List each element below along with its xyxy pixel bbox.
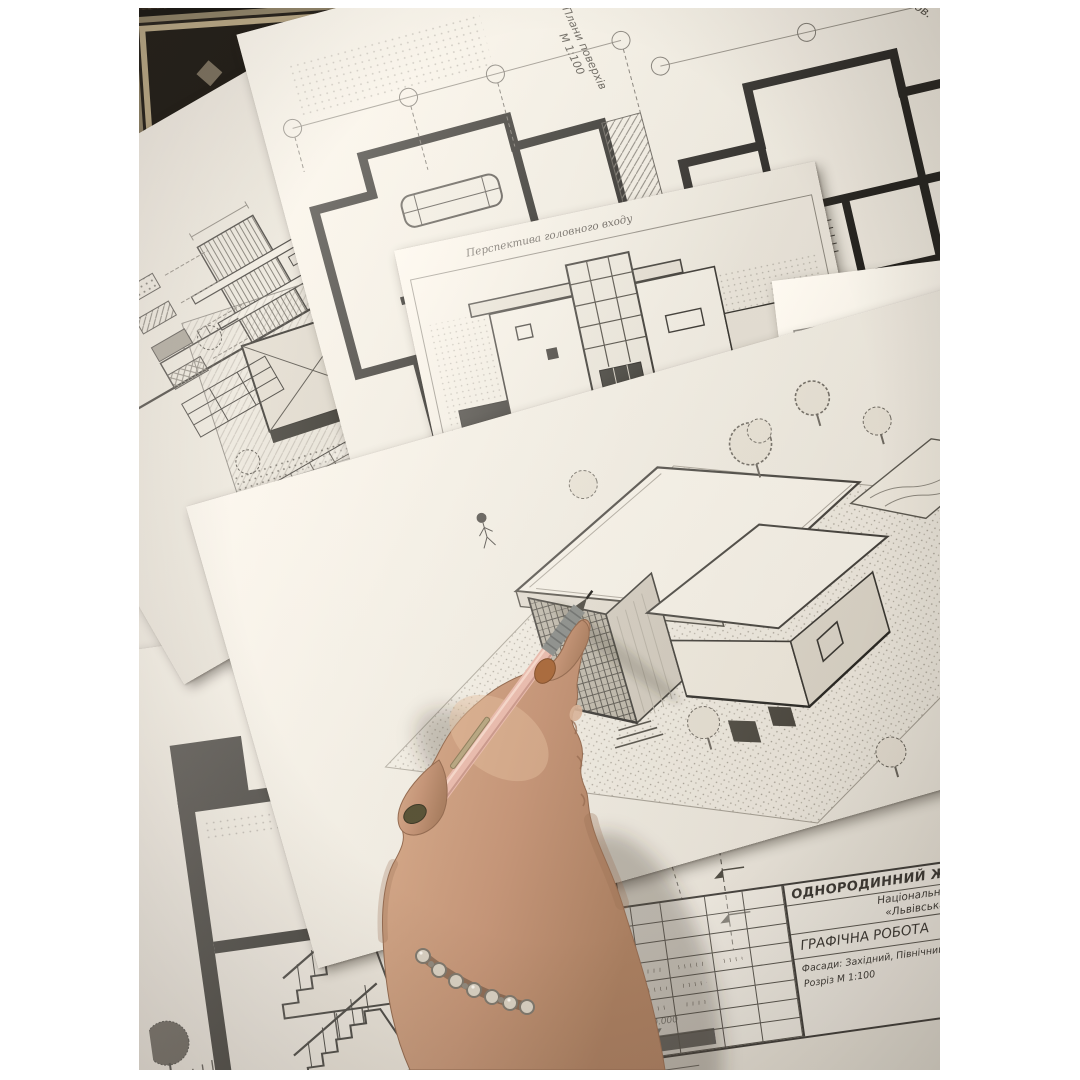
photograph-drafting-table: А: [139, 8, 940, 1070]
photo-frame: А: [0, 0, 1080, 1080]
hand-with-pencil: [139, 8, 940, 1070]
